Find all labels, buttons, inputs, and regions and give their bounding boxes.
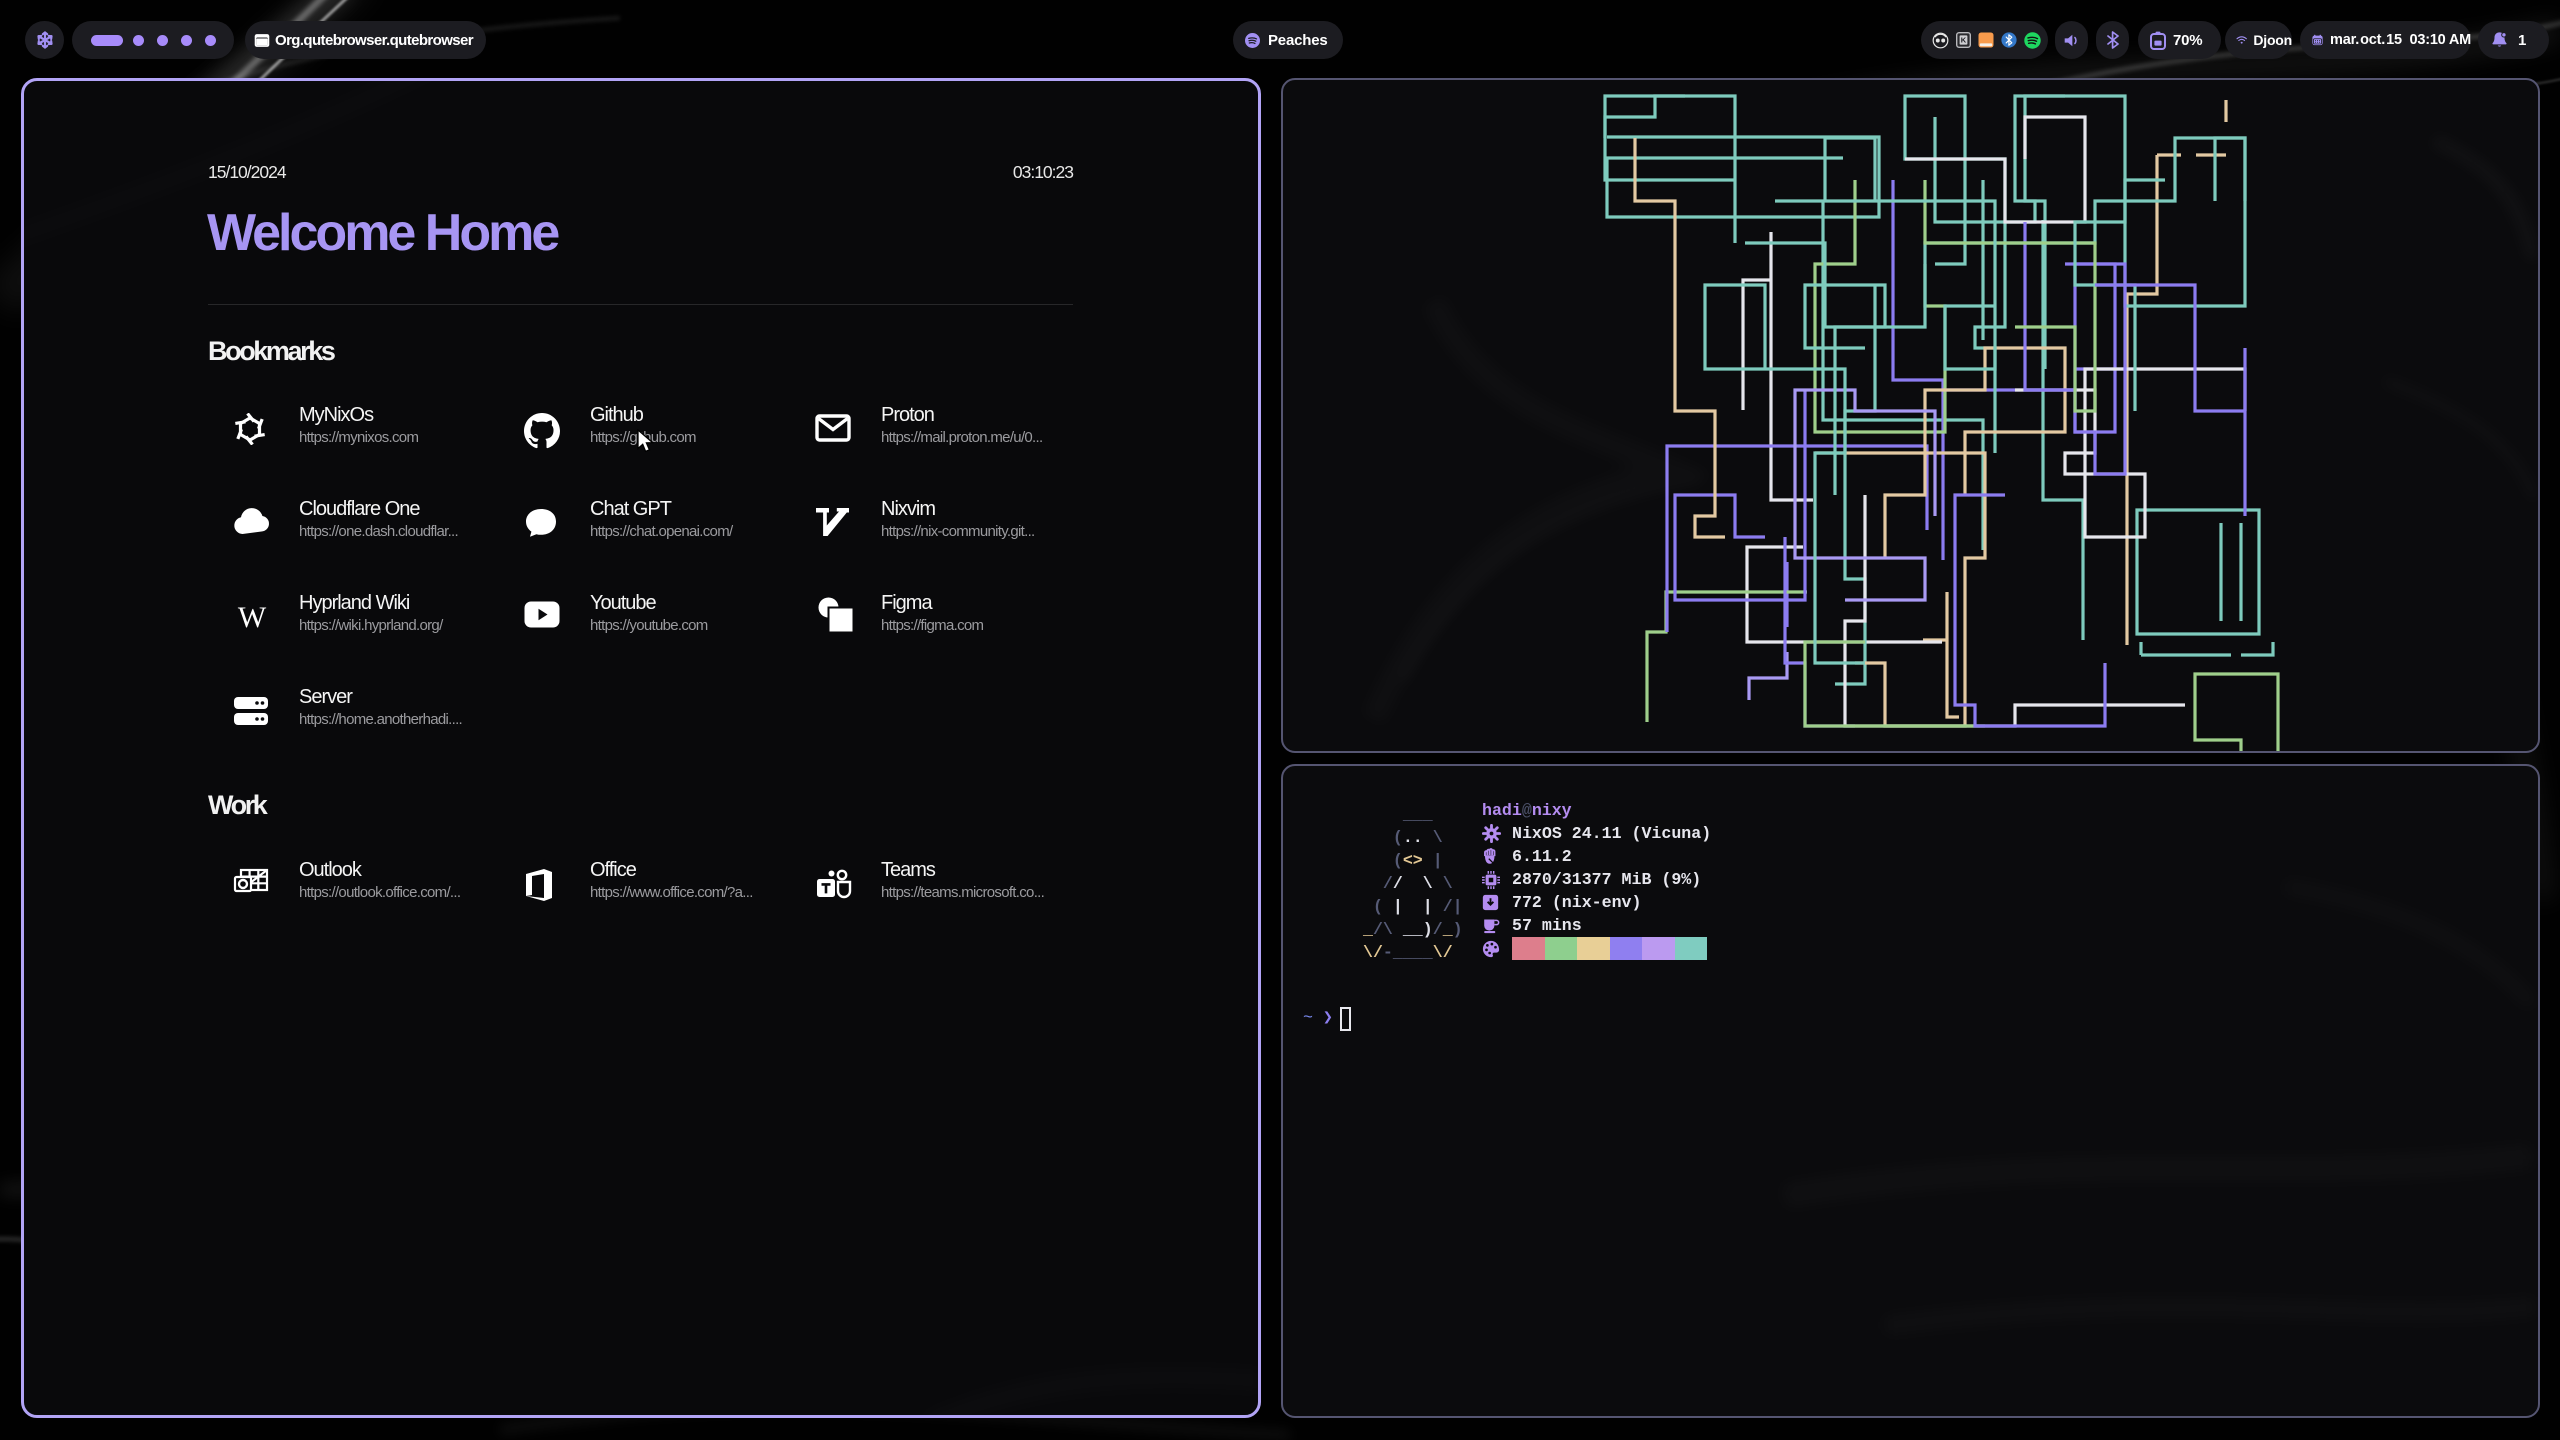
svg-text:W: W — [238, 601, 267, 633]
svg-text:K: K — [1961, 36, 1967, 45]
